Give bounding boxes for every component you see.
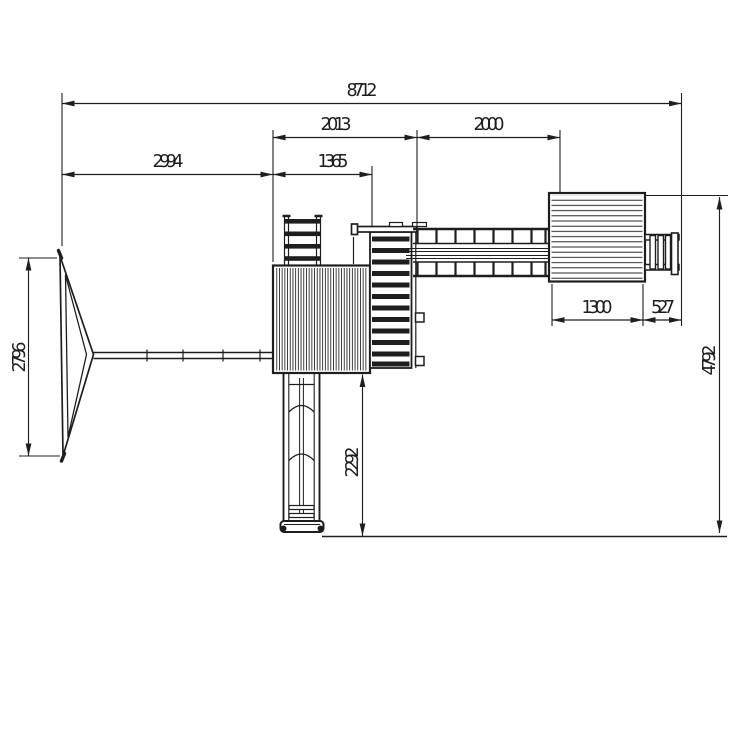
slide-exit (281, 521, 324, 532)
dim-label-slide-length: 2292 (343, 447, 363, 478)
stair-handrail (356, 227, 417, 233)
dim-label-overall-width: 8712 (347, 81, 378, 101)
drawing-canvas: 8712 2013 2000 2994 1365 1300 527 2796 2… (0, 0, 750, 750)
playground-top-view-drawing: 8712 2013 2000 2994 1365 1300 527 2796 2… (0, 0, 750, 750)
post-anchor (416, 313, 425, 322)
dim-label-bridge-span: 2000 (474, 115, 505, 135)
main-tower-platform (273, 266, 370, 374)
dim-label-tower-stairs-span: 2013 (321, 115, 352, 135)
dim-label-playhouse-width: 1300 (582, 298, 613, 318)
paper-background (0, 0, 750, 750)
playhouse-platform (549, 193, 645, 282)
dim-label-swing-frame-depth: 2796 (10, 342, 30, 373)
post-anchor (416, 357, 425, 366)
side-ladder (645, 233, 679, 275)
dim-label-side-ladder-width: 527 (651, 298, 675, 318)
dim-label-main-platform-width: 1365 (318, 152, 349, 172)
dim-label-overall-depth: 4792 (700, 345, 720, 376)
dim-label-swing-beam-span: 2994 (153, 152, 184, 172)
